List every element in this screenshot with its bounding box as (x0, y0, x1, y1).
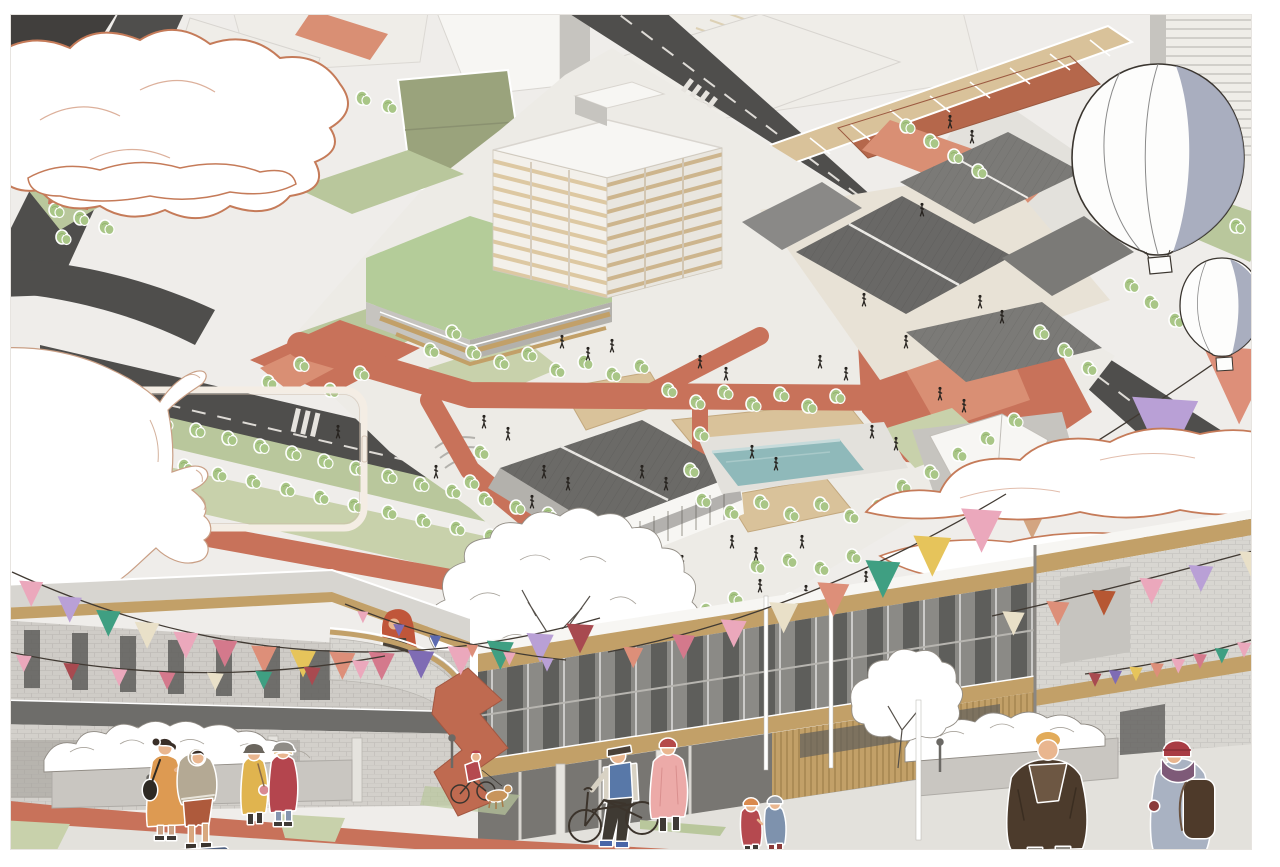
balloon-basket (1216, 357, 1233, 371)
red-beanie (1164, 742, 1190, 757)
flag-pole (829, 600, 833, 768)
illustration-canvas (0, 0, 1280, 867)
mitten (1149, 801, 1159, 811)
flag-pole (916, 700, 921, 840)
flag-pole (764, 596, 768, 770)
shoulder-bag (143, 780, 157, 800)
backpack (1184, 780, 1214, 838)
phone-side-button (362, 436, 367, 462)
balloon-basket (1148, 256, 1172, 274)
purse (260, 786, 269, 795)
